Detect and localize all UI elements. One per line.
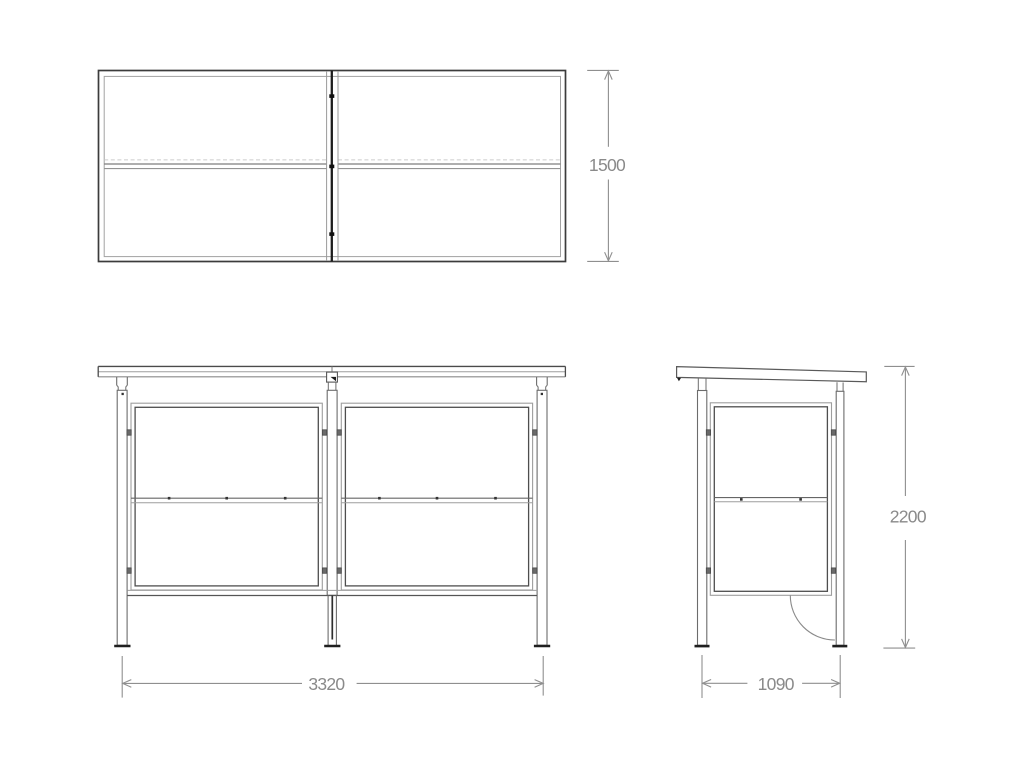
svg-text:2200: 2200 <box>890 506 927 526</box>
svg-text:1090: 1090 <box>758 674 795 694</box>
svg-text:3320: 3320 <box>308 674 345 694</box>
svg-text:1500: 1500 <box>589 155 626 175</box>
